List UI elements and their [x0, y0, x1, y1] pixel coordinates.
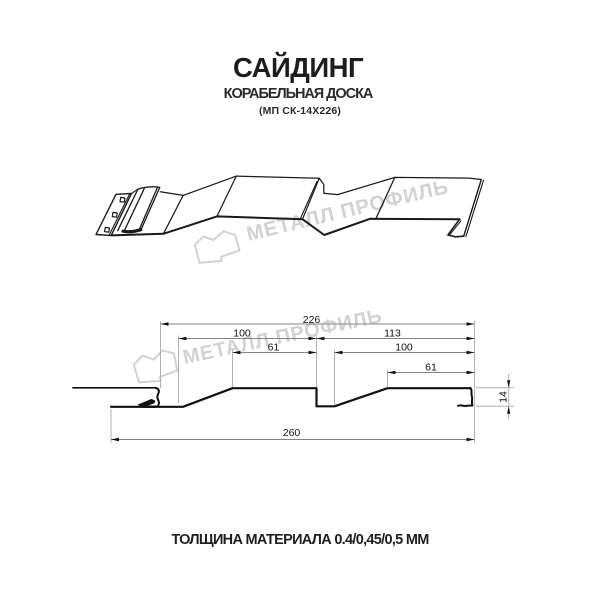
svg-text:МЕТАЛЛ ПРОФИЛЬ: МЕТАЛЛ ПРОФИЛЬ — [181, 305, 384, 369]
svg-text:61: 61 — [268, 342, 280, 354]
svg-text:61: 61 — [425, 362, 437, 374]
svg-text:МЕТАЛЛ ПРОФИЛЬ: МЕТАЛЛ ПРОФИЛЬ — [244, 176, 451, 246]
svg-text:113: 113 — [384, 328, 401, 340]
svg-text:226: 226 — [303, 314, 321, 326]
svg-text:100: 100 — [395, 342, 413, 354]
svg-text:260: 260 — [283, 427, 301, 439]
svg-text:14: 14 — [497, 391, 509, 403]
svg-text:100: 100 — [233, 328, 251, 340]
